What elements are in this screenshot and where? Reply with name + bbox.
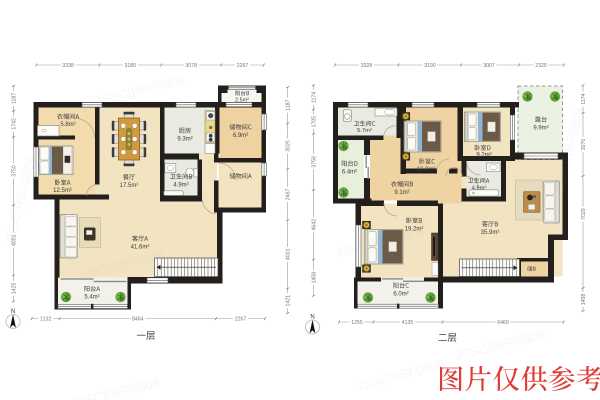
svg-text:8464: 8464 [132,316,144,322]
svg-text:9.1m²: 9.1m² [394,190,409,196]
svg-text:4135: 4135 [402,320,414,326]
svg-text:1174: 1174 [311,92,317,103]
svg-text:1421: 1421 [286,295,292,307]
svg-text:1132: 1132 [40,316,51,322]
svg-text:N: N [310,315,314,321]
svg-text:3758: 3758 [311,156,317,168]
svg-text:17.5m²: 17.5m² [120,183,139,189]
svg-text:9.2m²: 9.2m² [476,152,491,158]
svg-text:1187: 1187 [11,93,17,104]
svg-text:1187: 1187 [286,100,292,111]
svg-text:9.9m²: 9.9m² [533,125,548,131]
svg-text:3180: 3180 [125,63,137,69]
svg-text:9.3m²: 9.3m² [177,136,192,142]
svg-text:1255: 1255 [351,320,363,326]
svg-text:6.9m²: 6.9m² [233,133,248,139]
svg-text:2467: 2467 [286,189,292,201]
svg-text:3328: 3328 [361,63,373,69]
svg-text:12.8m²: 12.8m² [417,167,436,173]
svg-text:2.5m²: 2.5m² [235,98,249,104]
svg-text:4.9m²: 4.9m² [472,185,487,191]
svg-text:1458: 1458 [581,294,587,306]
svg-text:1174: 1174 [581,94,587,105]
svg-text:6.0m²: 6.0m² [393,291,408,297]
svg-text:35.9m²: 35.9m² [481,230,500,236]
svg-text:5.4m²: 5.4m² [84,294,99,300]
svg-text:2267: 2267 [237,63,249,69]
svg-text:1705: 1705 [311,116,317,128]
svg-text:3338: 3338 [62,63,74,69]
svg-text:2325: 2325 [535,63,547,69]
svg-text:3007: 3007 [483,63,495,69]
svg-text:5.8m²: 5.8m² [60,122,75,128]
svg-text:6460: 6460 [497,320,509,326]
svg-text:3025: 3025 [286,140,292,152]
svg-text:4642: 4642 [311,219,317,231]
svg-text:N: N [11,309,15,315]
svg-text:1425: 1425 [11,283,17,295]
svg-text:12.5m²: 12.5m² [53,188,72,194]
svg-text:4001: 4001 [286,248,292,260]
svg-text:1742: 1742 [11,118,17,130]
svg-text:3190: 3190 [424,63,436,69]
svg-text:3076: 3076 [581,139,587,151]
svg-text:1458: 1458 [311,272,317,284]
svg-text:2267: 2267 [235,316,247,322]
svg-text:3750: 3750 [11,165,17,177]
svg-text:7029: 7029 [581,208,587,220]
svg-text:41.6m²: 41.6m² [131,244,150,250]
svg-text:6.4m²: 6.4m² [342,169,357,175]
svg-text:3078: 3078 [185,63,197,69]
svg-text:5.7m²: 5.7m² [357,128,372,134]
svg-text:4.9m²: 4.9m² [173,182,188,188]
